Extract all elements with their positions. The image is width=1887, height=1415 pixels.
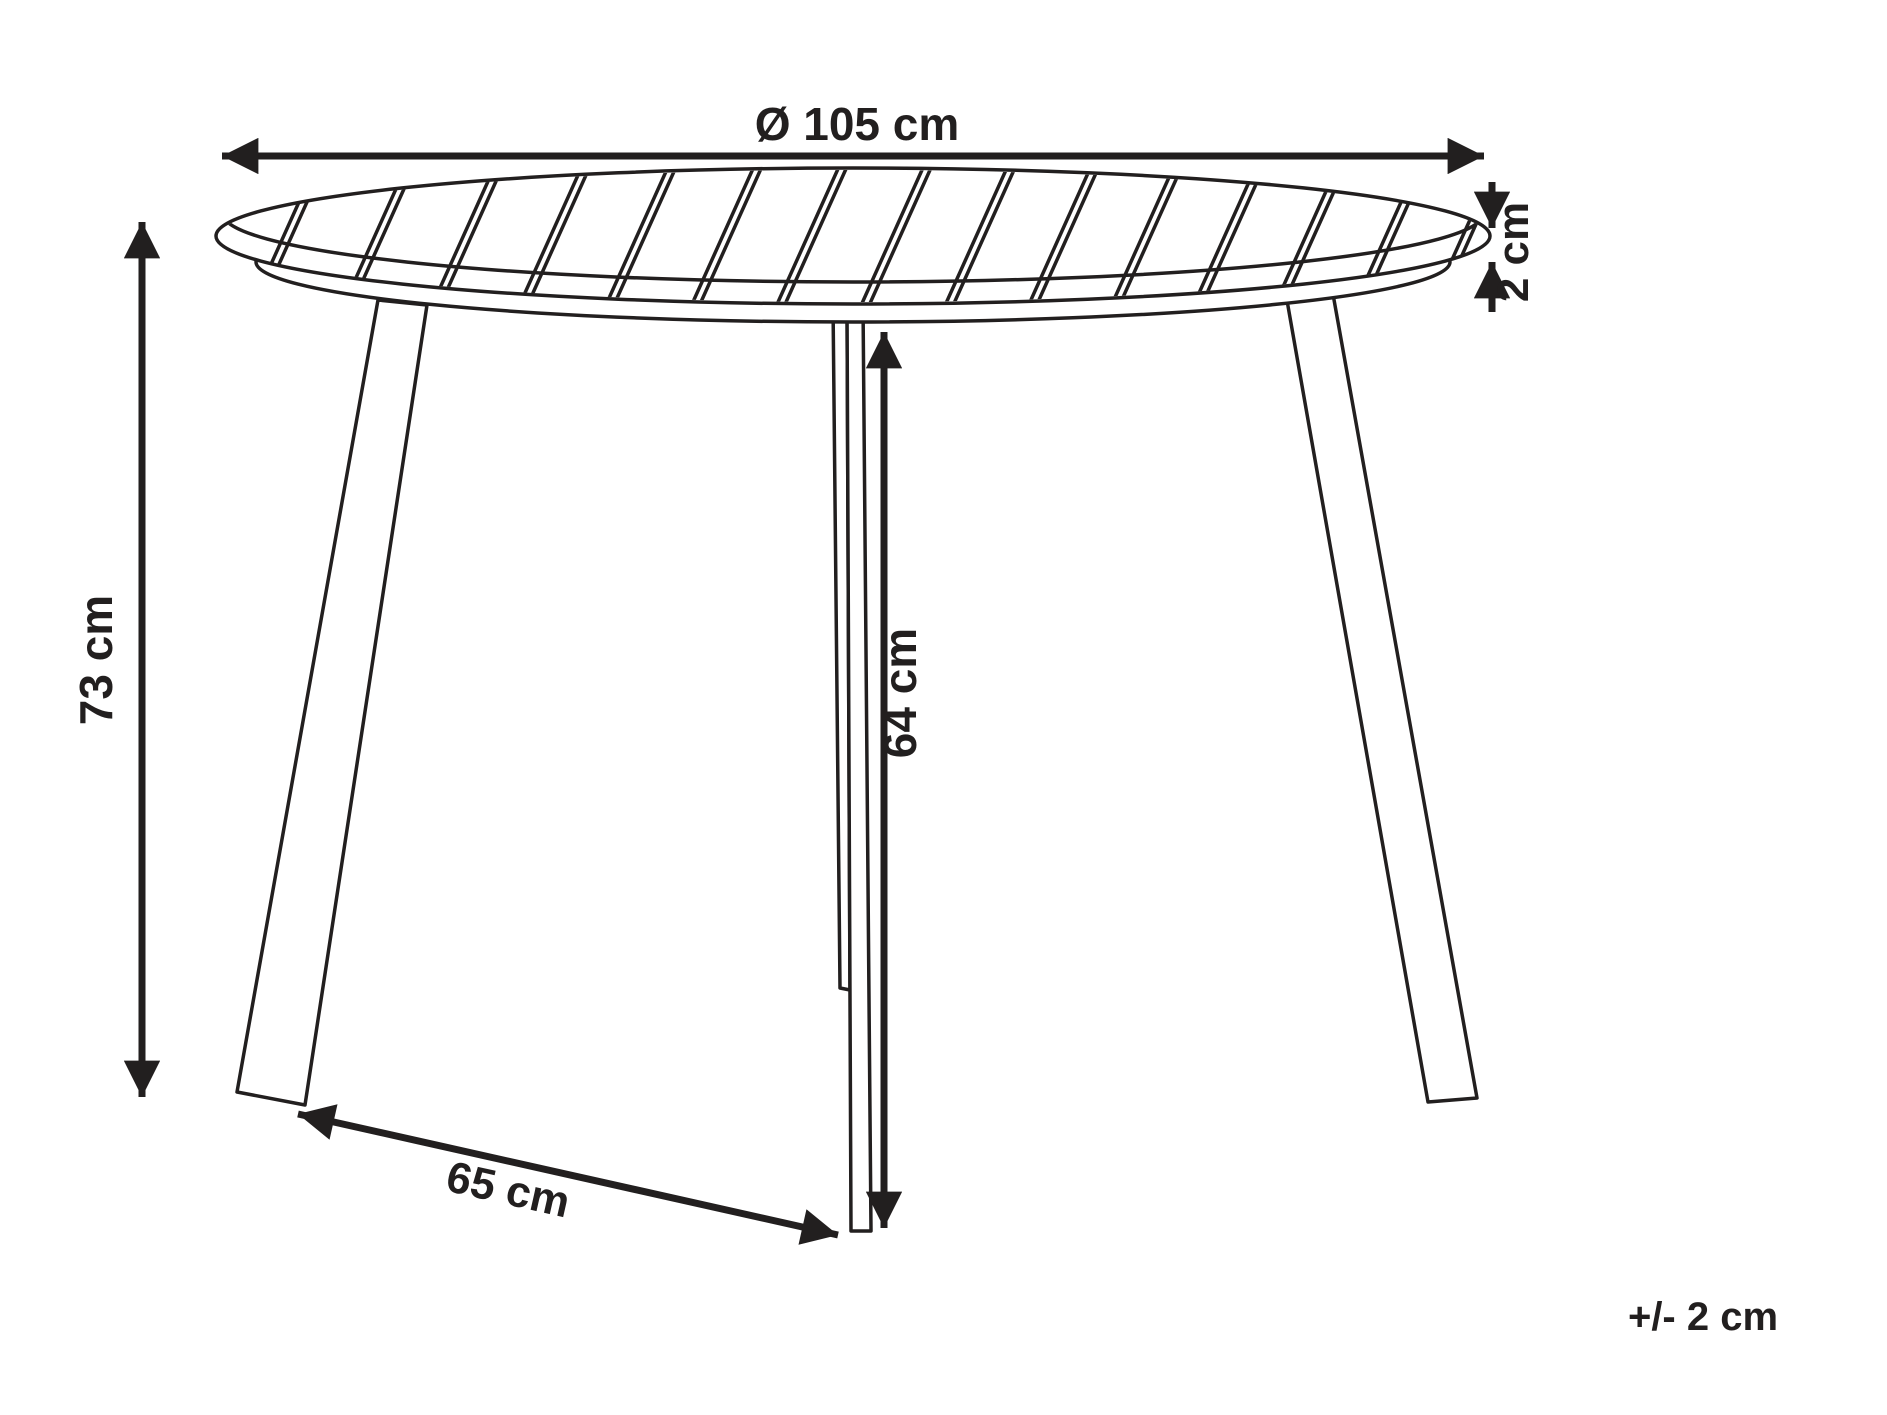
height-label: 73 cm — [70, 595, 122, 725]
table-leg-center — [847, 303, 871, 1231]
dimension-diameter: Ø 105 cm — [222, 98, 1484, 156]
table-drawing — [216, 150, 1509, 1231]
diameter-label: Ø 105 cm — [755, 98, 960, 150]
table-leg-right — [1285, 283, 1477, 1102]
dimension-diagram: Ø 105 cm 73 cm 2 cm 64 cm 65 cm — [0, 0, 1887, 1415]
dimension-leg-spread: 65 cm — [298, 1114, 838, 1235]
table-leg-left — [237, 300, 427, 1105]
leg-height-label: 64 cm — [874, 628, 926, 758]
diagram-canvas: Ø 105 cm 73 cm 2 cm 64 cm 65 cm — [0, 0, 1887, 1415]
tolerance-note: +/- 2 cm — [1628, 1295, 1778, 1339]
dimension-height: 73 cm — [70, 222, 142, 1097]
dimension-top-thickness: 2 cm — [1489, 182, 1538, 312]
leg-spread-dimension-line — [298, 1114, 838, 1235]
top-thickness-label: 2 cm — [1489, 202, 1538, 302]
dimension-leg-height: 64 cm — [874, 332, 926, 1228]
